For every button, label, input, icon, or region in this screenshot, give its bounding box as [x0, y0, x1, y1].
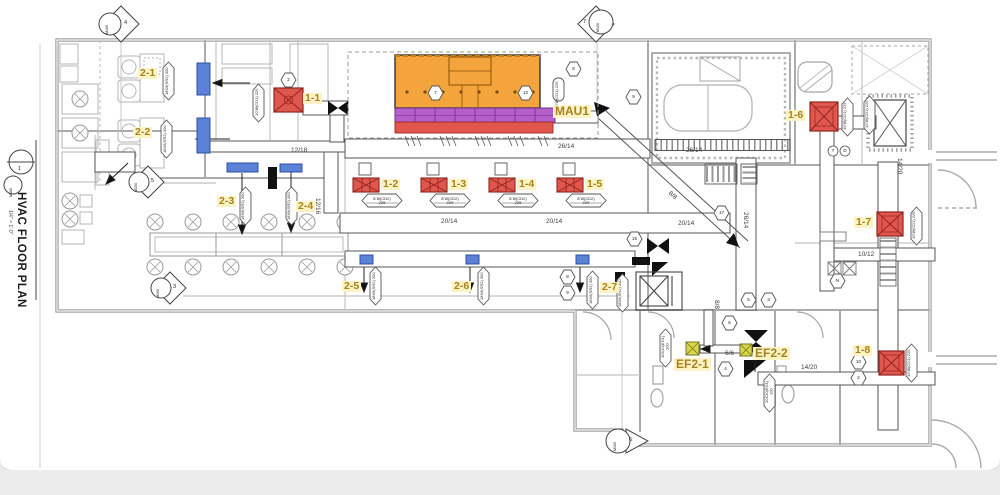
register-2-7	[576, 255, 589, 264]
register-2-2	[197, 118, 210, 153]
exhaust-fan-ef2-1	[686, 342, 699, 355]
ducts	[95, 101, 935, 430]
register-2-3	[227, 163, 258, 172]
ductsize-20-14-c: 20/14	[678, 220, 694, 227]
fan-unit-box	[636, 272, 682, 310]
ductsize-26-14-b: 26/14	[686, 147, 702, 154]
hex-tag-glyph: 4	[718, 366, 733, 371]
marker-number: 7	[583, 19, 586, 25]
door-opening-right-upper	[924, 150, 936, 163]
label-register-2-1: 2-1	[138, 68, 157, 79]
supply-diffuser-1-5	[557, 178, 583, 192]
hex-tag-glyph: 17	[714, 210, 729, 215]
door-opening-right-lower	[924, 352, 936, 367]
hex-tag-glyph: 6	[722, 320, 737, 325]
duct-riser	[268, 167, 277, 189]
equipment-dial	[72, 91, 88, 107]
duct-26-14-trunk	[345, 139, 650, 158]
hex-tag-glyph: 8	[566, 66, 581, 71]
device-tag-text: 18X6(SR2) 300	[618, 278, 626, 308]
hex-tag-glyph: 3	[761, 297, 776, 302]
duct-8-8-riser	[704, 310, 713, 346]
register-2-6	[466, 255, 479, 264]
ductsize-26-14-a: 26/14	[558, 143, 574, 150]
supply-diffuser-1-1	[274, 88, 303, 112]
ductsize-8-8-riser: 8/8	[713, 300, 720, 309]
device-tag-text: 10"Ø(CD1) 225	[843, 101, 851, 131]
circle-tag-d: D	[840, 148, 850, 153]
duct-10-12	[820, 248, 935, 261]
hex-tag-glyph: 7	[428, 90, 443, 95]
device-tag-text: 10"Ø(CD1) 225	[865, 99, 873, 129]
duct-bottom-run	[345, 251, 635, 267]
label-register-2-6: 2-6	[452, 281, 471, 292]
marker-number: 3	[173, 284, 176, 290]
marker-number: 5	[151, 178, 154, 184]
exterior-walkway	[932, 152, 997, 468]
device-tag-text: 10"Ø(CD1) 225	[907, 348, 915, 378]
supply-diffuser-1-4	[489, 178, 515, 192]
duct-riser	[632, 257, 650, 265]
viewer-background: HVAC FLOOR PLAN 1/4" = 1'-0" M100 1 1-1 …	[0, 0, 1000, 495]
patio-arc-inner	[932, 444, 956, 468]
marker-sheet-ref: M100	[134, 172, 138, 192]
top-right-room	[798, 46, 928, 94]
callout-sheet-ref: M100	[9, 177, 13, 197]
hex-tag-glyph: 2	[851, 375, 866, 380]
register-2-5	[360, 255, 373, 264]
damper-triangle	[744, 330, 768, 342]
diffuser-tag-1-3: 8"Ø(CD2) 225	[430, 196, 470, 205]
hex-tag-glyph: 5	[741, 297, 756, 302]
drawing-sheet: HVAC FLOOR PLAN 1/4" = 1'-0" M100 1 1-1 …	[0, 0, 1000, 471]
marker-sheet-ref: M100	[156, 278, 160, 298]
marker-sheet-ref: M100	[596, 12, 600, 32]
label-register-2-3: 2-3	[217, 196, 236, 207]
device-tag-text: 18X6(SR2) 300	[163, 124, 171, 154]
ductsize-20-14-a: 20/14	[441, 218, 457, 225]
diffuser-tag-cfm: 225	[498, 201, 538, 205]
label-register-2-5: 2-5	[342, 281, 361, 292]
label-register-2-2: 2-2	[133, 127, 152, 138]
label-diffuser-1-2: 1-2	[381, 179, 400, 190]
hex-tag-glyph: 9	[560, 290, 575, 295]
duct-louver-intake	[95, 152, 135, 172]
exterior-door-arc	[938, 170, 976, 208]
ductsize-26-14-c: 26/14	[742, 212, 749, 228]
fire-damper	[647, 238, 658, 254]
label-register-2-4: 2-4	[296, 201, 315, 212]
device-tag-text: 18X6(SR2) 300	[480, 271, 488, 301]
marker-number: 4	[124, 20, 127, 26]
device-tag-text: 18X6(SR2) 300	[589, 275, 597, 305]
duct-12-16-riser	[324, 152, 338, 213]
hex-tag-glyph: 2	[281, 77, 296, 82]
ductsize-14-20-a: 14/20	[801, 364, 817, 371]
device-tag-text: 18X6(SR2) 300	[241, 191, 249, 221]
duct-20-14-trunk	[340, 213, 730, 233]
duct-14-20-vertical	[878, 162, 898, 430]
ductsize-14-20-b: 14/20	[896, 158, 903, 174]
marker-sheet-ref: M100	[613, 431, 617, 451]
supply-diffuser-1-3	[421, 178, 447, 192]
label-diffuser-1-5: 1-5	[585, 179, 604, 190]
mau-supply-plenum	[395, 108, 555, 123]
dining-tables	[150, 233, 348, 256]
circle-tag-t: T	[828, 148, 838, 153]
stool	[62, 211, 78, 227]
callout-number: 1	[18, 166, 21, 172]
diffuser-tag-cfm: 225	[566, 201, 606, 205]
label-diffuser-1-3: 1-3	[449, 179, 468, 190]
device-tag-text: 18X6(SR2) 300	[287, 191, 295, 221]
stool	[62, 193, 78, 209]
diffuser-tag-1-4: 8"Ø(CD2) 225	[498, 196, 538, 205]
sheet-title: HVAC FLOOR PLAN	[15, 192, 27, 308]
label-diffuser-1-1: 1-1	[303, 93, 322, 104]
fire-damper	[658, 238, 669, 254]
diffuser-tag-cfm: 225	[362, 201, 402, 205]
device-tag-text: 18X6(SR2) 300	[372, 271, 380, 301]
supply-diffuser-1-8	[879, 351, 904, 375]
label-ef2-2: EF2-2	[753, 347, 790, 360]
register-2-1	[197, 63, 210, 95]
hex-tag-glyph: 15	[627, 236, 642, 241]
ductsize-12-18: 12/18	[291, 147, 307, 154]
label-register-2-7: 2-7	[600, 282, 619, 293]
device-tag-text: 18X6(SR2) 300	[165, 66, 173, 96]
titleblock-lines	[36, 45, 40, 468]
register-2-4	[280, 164, 302, 172]
ductsize-20-14-b: 20/14	[546, 218, 562, 225]
label-diffuser-1-6: 1-6	[786, 110, 805, 121]
sheet-scale: 1/4" = 1'-0"	[7, 210, 13, 234]
hex-tag-glyph: 8	[560, 274, 575, 279]
label-ef2-1: EF2-1	[674, 358, 711, 371]
ductsize-10-12: 10/12	[858, 251, 874, 258]
hex-tag-glyph: N	[830, 278, 845, 283]
marker-sheet-ref: M100	[105, 14, 109, 34]
ductsize-6-6: 6/6	[725, 350, 734, 357]
damper-triangle	[652, 262, 668, 276]
diffuser-tag-1-5: 8"Ø(CD2) 225	[566, 196, 606, 205]
label-diffuser-1-7: 1-7	[854, 217, 873, 228]
viewer-footer	[0, 470, 1000, 495]
equipment-dial	[72, 125, 88, 141]
hex-tag-glyph: 10	[851, 359, 866, 364]
duct-12-18	[210, 141, 345, 152]
door-arc	[797, 312, 823, 338]
device-tag-text: 10X10(EG1) 100	[765, 377, 773, 407]
device-tag-text: 10"Ø(CD1) 225	[255, 87, 263, 117]
label-mau1: MAU1	[553, 105, 591, 118]
label-diffuser-1-4: 1-4	[517, 179, 536, 190]
duct-drop-1-1	[330, 115, 344, 142]
hex-tag-glyph: 9	[626, 94, 641, 99]
device-tag-text: 10X10(EG1) 100	[661, 332, 669, 362]
hex-tag-glyph: 12	[518, 90, 533, 95]
supply-diffuser-1-7	[877, 212, 903, 236]
label-diffuser-1-8: 1-8	[853, 345, 872, 356]
diffuser-drops	[359, 163, 575, 175]
supply-diffuser-1-2	[353, 178, 379, 192]
diffuser-tag-1-2: 8"Ø(CD2) 225	[362, 196, 402, 205]
exhaust-fan-ef2-2	[740, 344, 752, 356]
supply-diffuser-1-6	[810, 102, 838, 131]
marker-number: 6	[629, 437, 632, 443]
device-tag-text: 10"Ø(CD1) 225	[912, 210, 920, 240]
patio-arc-outer	[932, 420, 981, 468]
duct-26-14-vertical	[736, 158, 756, 310]
diffuser-tag-cfm: 225	[430, 201, 470, 205]
door-arc	[583, 312, 611, 340]
